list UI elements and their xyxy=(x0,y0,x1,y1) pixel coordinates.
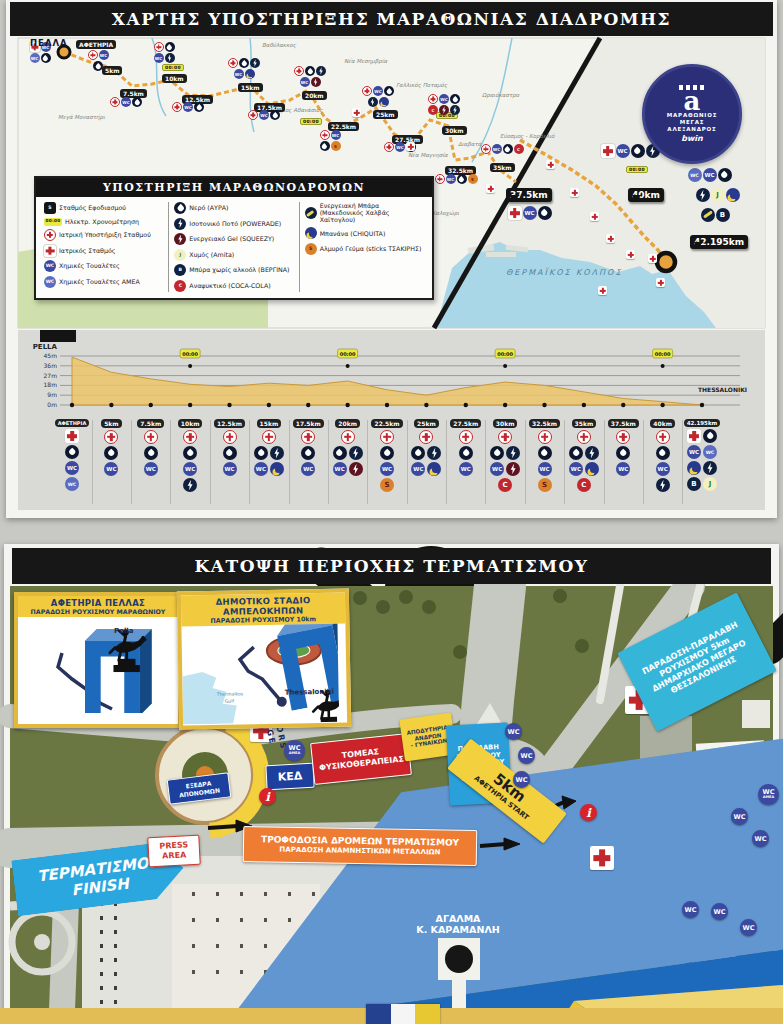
svg-text:9m: 9m xyxy=(47,391,57,398)
isotonic-icon xyxy=(165,53,175,63)
water-icon xyxy=(384,86,394,96)
aid-station-icon-row: WC xyxy=(538,462,552,476)
legend-item: Ενεργειακό Gel (SQUEEZY) xyxy=(174,233,293,245)
km-badge: 35km xyxy=(490,163,515,172)
legend-item-label: Χημικές Τουαλέτες xyxy=(59,262,120,269)
wc-icon: WC xyxy=(687,445,701,459)
wc-icon: WC xyxy=(154,53,164,63)
legend-item: Ενεργειακή Μπάρα(Μακεδονικός Χαλβάς Χαϊτ… xyxy=(305,202,424,224)
legend-item-label: Ενεργειακή Μπάρα(Μακεδονικός Χαλβάς Χαϊτ… xyxy=(320,202,424,224)
aid-station-icon-row xyxy=(144,430,158,444)
legend-item: Μπανάνα (CHIQUITA) xyxy=(305,227,424,239)
aid-station-icon-row xyxy=(459,446,473,460)
aid-station-icon-row xyxy=(65,445,79,459)
start-badge: ΑΦΕΤΗΡΙΑ xyxy=(76,40,116,49)
aid-station-km-badge: 10km xyxy=(178,419,203,428)
aid-station-cluster: WC xyxy=(108,97,144,107)
aid-station-km-badge: 40km xyxy=(650,419,675,428)
aid-station-cluster: WC xyxy=(170,102,206,112)
medical-cross-marker xyxy=(606,234,615,243)
water-icon xyxy=(239,58,249,68)
aid-station-icon-row xyxy=(183,430,197,444)
timing-checkpoint-badge: 00:00 xyxy=(300,118,322,125)
aid-station-column: 37.5kmWC xyxy=(603,419,643,476)
banana-icon xyxy=(379,97,389,107)
aid-station-cluster: J xyxy=(692,188,743,202)
water-icon xyxy=(450,94,460,104)
aid-station-icon-row xyxy=(301,430,315,444)
timing-icon: 00:00 xyxy=(44,218,62,226)
banana-icon xyxy=(585,462,599,476)
medical-support-icon xyxy=(110,97,120,107)
wc-icon: WC xyxy=(380,462,394,476)
aid-station-icon-row xyxy=(687,461,717,475)
medical-cross-marker xyxy=(406,142,415,151)
aid-station-icon-row xyxy=(341,430,355,444)
medical-support-icon xyxy=(104,430,118,444)
banana-icon xyxy=(427,462,441,476)
km-badge: 20km xyxy=(302,91,327,100)
legend-item-label: Ιατρική Υποστήριξη Σταθμού xyxy=(59,231,151,238)
water-icon xyxy=(41,53,51,63)
km-callout: 37.5km xyxy=(506,188,552,202)
km-badge: 30km xyxy=(442,126,467,135)
water-icon xyxy=(194,102,204,112)
soda-icon: C xyxy=(577,478,591,492)
legend-box: ΥΠΟΣΤΗΡΙΞΗ ΜΑΡΑΘΩΝΟΔΡΟΜΩΝ SΣταθμός Εφοδι… xyxy=(34,176,434,300)
aid-station-icon-row: WC xyxy=(223,462,237,476)
aid-station-icon-row xyxy=(459,430,473,444)
medical-station-icon xyxy=(687,429,701,443)
beer-icon: B xyxy=(687,477,701,491)
station-icon: S xyxy=(44,202,56,214)
isotonic-icon xyxy=(585,446,599,460)
wc-icon: WC xyxy=(234,69,244,79)
inset-stadium-place-label: Thessaloniki xyxy=(285,688,334,697)
isotonic-icon xyxy=(427,446,441,460)
aid-station-cluster: WC xyxy=(292,66,328,87)
aid-station-icon-row xyxy=(262,430,276,444)
isotonic-icon xyxy=(506,446,520,460)
svg-text:PELLA: PELLA xyxy=(33,343,58,351)
water-icon xyxy=(538,446,552,460)
medical-support-icon xyxy=(577,430,591,444)
aid-station-column: 17.5kmWC xyxy=(288,419,328,476)
wc-amea-icon: WC xyxy=(44,276,56,288)
aid-station-icon-row xyxy=(498,430,512,444)
aid-station-icon-row xyxy=(656,478,670,492)
feed-box-line: ΠΑΡΑΔΟΣΗ ΑΝΑΜΝΗΣΤΙΚΩΝ ΜΕΤΑΛΛΙΩΝ xyxy=(279,846,440,857)
wc-icon: WC xyxy=(616,462,630,476)
gel-icon xyxy=(174,233,186,245)
aid-station-column: 20kmWC xyxy=(328,419,368,476)
legend-item: WCΧημικές Τουαλέτες xyxy=(44,260,163,272)
aid-station-km-badge: 30km xyxy=(493,419,518,428)
water-icon xyxy=(718,168,732,182)
ked-box-line: ΚΕΔ xyxy=(277,769,302,783)
legend-column-1: SΣταθμός Εφοδιασμού00:00Ηλεκτρ. Χρονομέτ… xyxy=(39,202,168,292)
aid-station-column: 32.5kmWCS xyxy=(525,419,565,492)
legend-item: 00:00Ηλεκτρ. Χρονομέτρηση xyxy=(44,218,163,226)
water-icon xyxy=(174,202,186,214)
town-label: Ωραιόκαστρο xyxy=(482,92,519,98)
inset-pella-title: ΑΦΕΤΗΡΙΑ ΠΕΛΛΑΣ xyxy=(19,598,177,608)
svg-text:00:00: 00:00 xyxy=(655,351,671,357)
aid-station-icon-row: WCWC xyxy=(687,445,717,459)
wc-amea-icon: WC xyxy=(65,477,79,491)
water-icon xyxy=(538,206,552,220)
inset-pella-header: ΑΦΕΤΗΡΙΑ ΠΕΛΛΑΣ ΠΑΡΑΔΟΣΗ ΡΟΥΧΙΣΜΟΥ ΜΑΡΑΘ… xyxy=(18,596,178,617)
legend-item-label: Μπύρα χωρίς αλκοόλ (ΒΕΡΓΙΝΑ) xyxy=(189,266,289,273)
aid-station-icon-row xyxy=(687,429,717,443)
juice-icon: J xyxy=(711,188,725,202)
aid-station-km-badge: 32.5km xyxy=(529,419,560,428)
aid-station-column: 12.5kmWC xyxy=(210,419,250,476)
aid-station-km-badge: 22.5km xyxy=(371,419,402,428)
energy-bar-icon xyxy=(701,208,715,222)
inset-pella-start: ΑΦΕΤΗΡΙΑ ΠΕΛΛΑΣ ΠΑΡΑΔΟΣΗ ΡΟΥΧΙΣΜΟΥ ΜΑΡΑΘ… xyxy=(14,592,182,728)
aid-station-icon-row xyxy=(223,446,237,460)
wc-icon: WC xyxy=(223,462,237,476)
medical-support-icon xyxy=(538,430,552,444)
beer-icon: B xyxy=(174,264,186,276)
svg-text:45m: 45m xyxy=(44,352,58,359)
aid-station-column: 7.5kmWC xyxy=(131,419,171,476)
water-icon xyxy=(457,174,467,184)
medical-cross-marker xyxy=(598,286,607,295)
aid-station-icon-row xyxy=(538,446,552,460)
wc-icon: WC xyxy=(569,462,583,476)
medical-support-icon xyxy=(228,58,238,68)
aid-station-icon-row xyxy=(65,429,79,443)
isotonic-icon xyxy=(349,446,363,460)
inset-pella-subtitle: ΠΑΡΑΔΟΣΗ ΡΟΥΧΙΣΜΟΥ ΜΑΡΑΘΩΝΙΟΥ xyxy=(19,608,177,615)
aid-station-km-badge: 17.5km xyxy=(293,419,324,428)
soda-icon: C xyxy=(514,144,524,154)
water-icon xyxy=(569,446,583,460)
water-icon xyxy=(254,446,268,460)
salty-icon: S xyxy=(468,174,478,184)
medical-station-icon xyxy=(508,206,522,220)
aid-station-cluster: WC xyxy=(360,86,396,107)
beer-icon: B xyxy=(716,208,730,222)
bottom-poster-title: ΚΑΤΟΨΗ ΠΕΡΙΟΧΗΣ ΤΕΡΜΑΤΙΣΜΟΥ xyxy=(195,556,589,576)
aid-station-icon-row xyxy=(569,446,599,460)
wc-amea-icon: WC xyxy=(30,53,40,63)
water-icon xyxy=(320,141,330,151)
medical-support-icon xyxy=(656,430,670,444)
water-icon xyxy=(104,446,118,460)
salty-icon: S xyxy=(305,243,317,255)
salty-icon: S xyxy=(380,478,394,492)
water-icon xyxy=(144,446,158,460)
legend-item-label: Ισοτονικό Ποτό (POWERADE) xyxy=(189,220,281,227)
bottom-poster-title-bar: ΚΑΤΟΨΗ ΠΕΡΙΟΧΗΣ ΤΕΡΜΑΤΙΣΜΟΥ xyxy=(12,548,771,584)
inset-pella-minimap xyxy=(18,617,170,713)
aid-station-km-badge: 15km xyxy=(257,419,282,428)
aid-station-cluster: WCS xyxy=(318,130,342,151)
wc-icon: WC xyxy=(183,462,197,476)
wc-icon: WC xyxy=(492,144,502,154)
info-marker: i xyxy=(259,788,276,805)
aid-station-icon-row xyxy=(419,430,433,444)
medical-station-icon xyxy=(65,429,79,443)
aid-station-icon-row: S xyxy=(380,478,394,492)
legend-item-label: Ενεργειακό Gel (SQUEEZY) xyxy=(189,235,274,242)
legend-item-label: Αναψυκτικό (COCA-COLA) xyxy=(189,282,270,289)
aid-station-km-badge: 5km xyxy=(101,419,121,428)
legend-item: BΜπύρα χωρίς αλκοόλ (ΒΕΡΓΙΝΑ) xyxy=(174,264,293,276)
aid-station-column: ΑΦΕΤΗΡΙΑWCWC xyxy=(52,419,92,491)
town-label: Βαθύλακκος xyxy=(262,42,296,48)
wc-marker: WC xyxy=(711,903,728,920)
aid-station-icon-row xyxy=(380,446,394,460)
wc-marker: WC xyxy=(752,830,769,847)
marathon-logo-badge: a ΜΑΡΑΘΩΝΙΟΣ ΜΕΓΑΣ ΑΛΕΞΑΝΔΡΟΣ bwin xyxy=(642,64,742,164)
banana-icon xyxy=(245,69,255,79)
wc-icon: WC xyxy=(616,144,630,158)
aid-station-icon-row: WC xyxy=(490,462,520,476)
banana-icon xyxy=(270,462,284,476)
aid-station-km-badge: ΑΦΕΤΗΡΙΑ xyxy=(55,419,90,427)
wc-icon: WC xyxy=(395,142,405,152)
medical-support-icon xyxy=(498,430,512,444)
finish-point-marker xyxy=(657,253,675,271)
water-icon xyxy=(183,446,197,460)
svg-text:00:00: 00:00 xyxy=(182,351,198,357)
logo-sponsor: bwin xyxy=(681,134,703,143)
aid-station-km-badge: 12.5km xyxy=(214,419,245,428)
km-callout: 42.195km xyxy=(690,235,748,249)
legend-item-label: Χυμός (Amita) xyxy=(189,251,234,258)
wc-amea-marker: WCΑΜΕΑ xyxy=(284,740,305,761)
photo-of-marathon-posters: 45m36m27m18m9m0m00:0000:0000:0000:00PELL… xyxy=(0,0,783,1024)
medical-cross-marker xyxy=(648,254,657,263)
aid-station-icon-row xyxy=(183,446,197,460)
aid-station-icon-row: C xyxy=(498,478,512,492)
aid-station-cluster: WCC xyxy=(478,144,526,154)
wc-icon: WC xyxy=(65,461,79,475)
soda-icon: C xyxy=(174,280,186,292)
water-icon xyxy=(411,446,425,460)
wc-icon: WC xyxy=(183,102,193,112)
aid-station-column: 10kmWC xyxy=(170,419,210,492)
aid-station-icon-row xyxy=(301,446,315,460)
inset-stadium-header: ΔΗΜΟΤΙΚΟ ΣΤΑΔΙΟ ΑΜΠΕΛΟΚΗΠΩΝ ΠΑΡΑΔΟΣΗ ΡΟΥ… xyxy=(181,593,346,627)
inset-sea-label-line1: Thermaikos xyxy=(217,691,244,697)
press-area-box: PRESSAREA xyxy=(147,835,200,868)
km-badge: 15km xyxy=(238,83,263,92)
info-marker: i xyxy=(580,804,597,821)
banana-icon xyxy=(305,227,317,239)
wc-icon: WC xyxy=(254,462,268,476)
medical-support-icon xyxy=(616,430,630,444)
aid-station-icon-row xyxy=(616,430,630,444)
aid-station-icon-row: WC xyxy=(569,462,599,476)
foreground-object xyxy=(366,1004,440,1024)
wc-icon: WC xyxy=(331,130,341,140)
isotonic-icon xyxy=(270,446,284,460)
medical-support-icon xyxy=(44,229,56,241)
aid-station-icon-row: WC xyxy=(65,477,79,491)
aid-station-km-badge: 27.5km xyxy=(450,419,481,428)
top-poster-title: ΧΑΡΤΗΣ ΥΠΟΣΤΗΡΙΞΗΣ ΜΑΡΑΘΩΝΙΑΣ ΔΙΑΔΡΟΜΗΣ xyxy=(112,9,671,29)
wc-icon: WC xyxy=(99,50,109,60)
legend-column-3: Ενεργειακή Μπάρα(Μακεδονικός Χαλβάς Χαϊτ… xyxy=(299,202,429,292)
medical-cross-marker xyxy=(352,108,361,117)
legend-item: SΣταθμός Εφοδιασμού xyxy=(44,202,163,214)
aid-station-icon-row xyxy=(616,446,630,460)
medical-station-icon xyxy=(44,245,56,257)
legend-columns: SΣταθμός Εφοδιασμού00:00Ηλεκτρ. Χρονομέτ… xyxy=(36,197,432,298)
water-icon xyxy=(165,42,175,52)
aid-station-column: 22.5kmWCS xyxy=(367,419,407,492)
karamanlis-statue-label: ΑΓΑΛΜΑΚ. ΚΑΡΑΜΑΝΛΗ xyxy=(392,910,524,938)
svg-text:THESSALONIKI: THESSALONIKI xyxy=(698,386,747,393)
aid-station-icon-row: WC xyxy=(301,462,315,476)
water-icon xyxy=(616,446,630,460)
salty-icon: S xyxy=(538,478,552,492)
medical-cross-marker xyxy=(546,160,555,169)
banana-icon xyxy=(687,461,701,475)
top-poster-title-bar: ΧΑΡΤΗΣ ΥΠΟΣΤΗΡΙΞΗΣ ΜΑΡΑΘΩΝΙΑΣ ΔΙΑΔΡΟΜΗΣ xyxy=(10,2,773,36)
aid-station-column: 30kmWCC xyxy=(485,419,525,492)
aid-station-km-badge: 7.5km xyxy=(137,419,164,428)
legend-item: Ιατρική Υποστήριξη Σταθμού xyxy=(44,229,163,241)
wc-icon: WC xyxy=(490,462,504,476)
karamanlis-statue-label-line: Κ. ΚΑΡΑΜΑΝΛΗ xyxy=(416,924,499,935)
svg-text:36m: 36m xyxy=(44,362,58,369)
flag-stripe-blue xyxy=(366,1004,391,1024)
medical-support-icon xyxy=(320,130,330,140)
svg-text:18m: 18m xyxy=(44,381,58,388)
aid-station-icon-row: WC xyxy=(411,462,441,476)
aid-station-icon-row: WC xyxy=(254,462,284,476)
wc-marker: WC xyxy=(731,808,748,825)
wc-amea-marker: WCΑΜΕΑ xyxy=(758,784,779,805)
water-icon xyxy=(631,144,645,158)
medical-support-icon xyxy=(262,430,276,444)
legend-item: JΧυμός (Amita) xyxy=(174,249,293,261)
medical-support-icon xyxy=(88,50,98,60)
aid-station-cluster: WC xyxy=(152,42,176,63)
medical-support-icon xyxy=(223,430,237,444)
town-label: Καλοχώρι xyxy=(432,210,459,216)
karamanlis-statue-label-line: ΑΓΑΛΜΑ xyxy=(436,913,481,924)
town-label: Νέα Μεσημβρία xyxy=(344,58,387,64)
medical-support-icon xyxy=(362,86,372,96)
aid-station-icon-row: WC xyxy=(333,462,363,476)
aid-station-column: 40kmWC xyxy=(643,419,683,492)
water-icon xyxy=(703,429,717,443)
water-icon xyxy=(223,446,237,460)
inset-stadium-title: ΔΗΜΟΤΙΚΟ ΣΤΑΔΙΟ ΑΜΠΕΛΟΚΗΠΩΝ xyxy=(182,595,344,618)
aid-station-icon-row xyxy=(538,430,552,444)
medical-cross-marker xyxy=(656,278,665,287)
aid-station-column: 35kmWCC xyxy=(564,419,604,492)
water-icon xyxy=(333,446,347,460)
aid-station-km-badge: 35km xyxy=(572,419,597,428)
aid-station-cluster: WC xyxy=(504,206,555,220)
wc-icon: WC xyxy=(121,97,131,107)
aid-station-icon-row: WC xyxy=(656,462,670,476)
wc-icon: WC xyxy=(259,110,269,120)
flag-stripe-white xyxy=(391,1004,416,1024)
juice-icon: J xyxy=(174,249,186,261)
pella-label: ΠΕΛΛΑ xyxy=(30,38,68,48)
aid-station-icon-row xyxy=(656,446,670,460)
aid-station-icon-row xyxy=(223,430,237,444)
aid-station-column: 25kmWC xyxy=(406,419,446,476)
soda-icon: C xyxy=(498,478,512,492)
wc-icon: WC xyxy=(459,462,473,476)
timing-checkpoint-badge: 00:00 xyxy=(626,166,648,173)
wc-icon: WC xyxy=(703,168,717,182)
aid-station-icon-row xyxy=(333,446,363,460)
water-icon xyxy=(132,97,142,107)
flag-stripe-yellow xyxy=(415,1004,440,1024)
isotonic-icon xyxy=(703,461,717,475)
wc-marker: WC xyxy=(513,771,530,788)
inset-stadium-subtitle: ΠΑΡΑΔΟΣΗ ΡΟΥΧΙΣΜΟΥ 10km xyxy=(182,615,344,625)
timing-checkpoint-badge: 00:00 xyxy=(162,64,184,71)
wc-icon: WC xyxy=(523,206,537,220)
town-label: Εύοσμος - Κορδελιό xyxy=(500,133,554,139)
isotonic-icon xyxy=(183,478,197,492)
medical-support-icon xyxy=(459,430,473,444)
medical-support-icon xyxy=(172,102,182,112)
isotonic-icon xyxy=(174,218,186,230)
wc-icon: WC xyxy=(538,462,552,476)
town-label: Γαλλικός Ποταμός xyxy=(396,82,447,88)
logo-letter: a xyxy=(684,90,701,112)
medical-support-icon xyxy=(435,174,445,184)
aid-station-icon-row: WC xyxy=(183,462,197,476)
press-area-box-line: AREA xyxy=(162,850,186,861)
legend-item-label: Ιατρικός Σταθμός xyxy=(59,247,116,254)
wc-icon: WC xyxy=(333,462,347,476)
aid-station-cluster: WC xyxy=(246,110,282,120)
legend-item-label: Μπανάνα (CHIQUITA) xyxy=(320,230,386,237)
ked-box: ΚΕΔ xyxy=(265,763,314,790)
aid-station-icon-row xyxy=(577,430,591,444)
medical-support-icon xyxy=(248,110,258,120)
karamanlis-statue-dot xyxy=(445,945,473,973)
aid-station-cluster: WC xyxy=(86,50,110,71)
legend-item-label: Αλμυρό Γεύμα (sticks ΤΣΑΚΙΡΗΣ) xyxy=(320,245,422,252)
medical-support-icon xyxy=(384,142,394,152)
sea-label: ΘΕΡΜΑΪΚΟΣ ΚΟΛΠΟΣ xyxy=(506,268,622,277)
aid-station-icon-row xyxy=(656,430,670,444)
inset-pella-place-label: Pella xyxy=(114,627,133,635)
aid-station-icon-row: WC xyxy=(144,462,158,476)
medical-support-icon xyxy=(380,430,394,444)
legend-item: SΑλμυρό Γεύμα (sticks ΤΣΑΚΙΡΗΣ) xyxy=(305,243,424,255)
podium-box-line: ΑΠΟΝΟΜΩΝ xyxy=(179,786,221,798)
aid-station-icon-row: C xyxy=(577,478,591,492)
wc-icon: WC xyxy=(300,77,310,87)
logo-line-1: ΜΑΡΑΘΩΝΙΟΣ xyxy=(667,112,717,119)
logo-line-2: ΜΕΓΑΣ xyxy=(680,119,705,126)
legend-item: WCΧημικές Τουαλέτες ΑΜΕΑ xyxy=(44,276,163,288)
aid-station-icon-row: BJ xyxy=(687,477,717,491)
wc-amea-icon: WC xyxy=(688,168,702,182)
svg-text:27m: 27m xyxy=(44,372,58,379)
water-icon xyxy=(305,66,315,76)
km-badge: 25km xyxy=(373,110,398,119)
wc-icon: WC xyxy=(104,462,118,476)
aid-station-icon-row: WC xyxy=(380,462,394,476)
